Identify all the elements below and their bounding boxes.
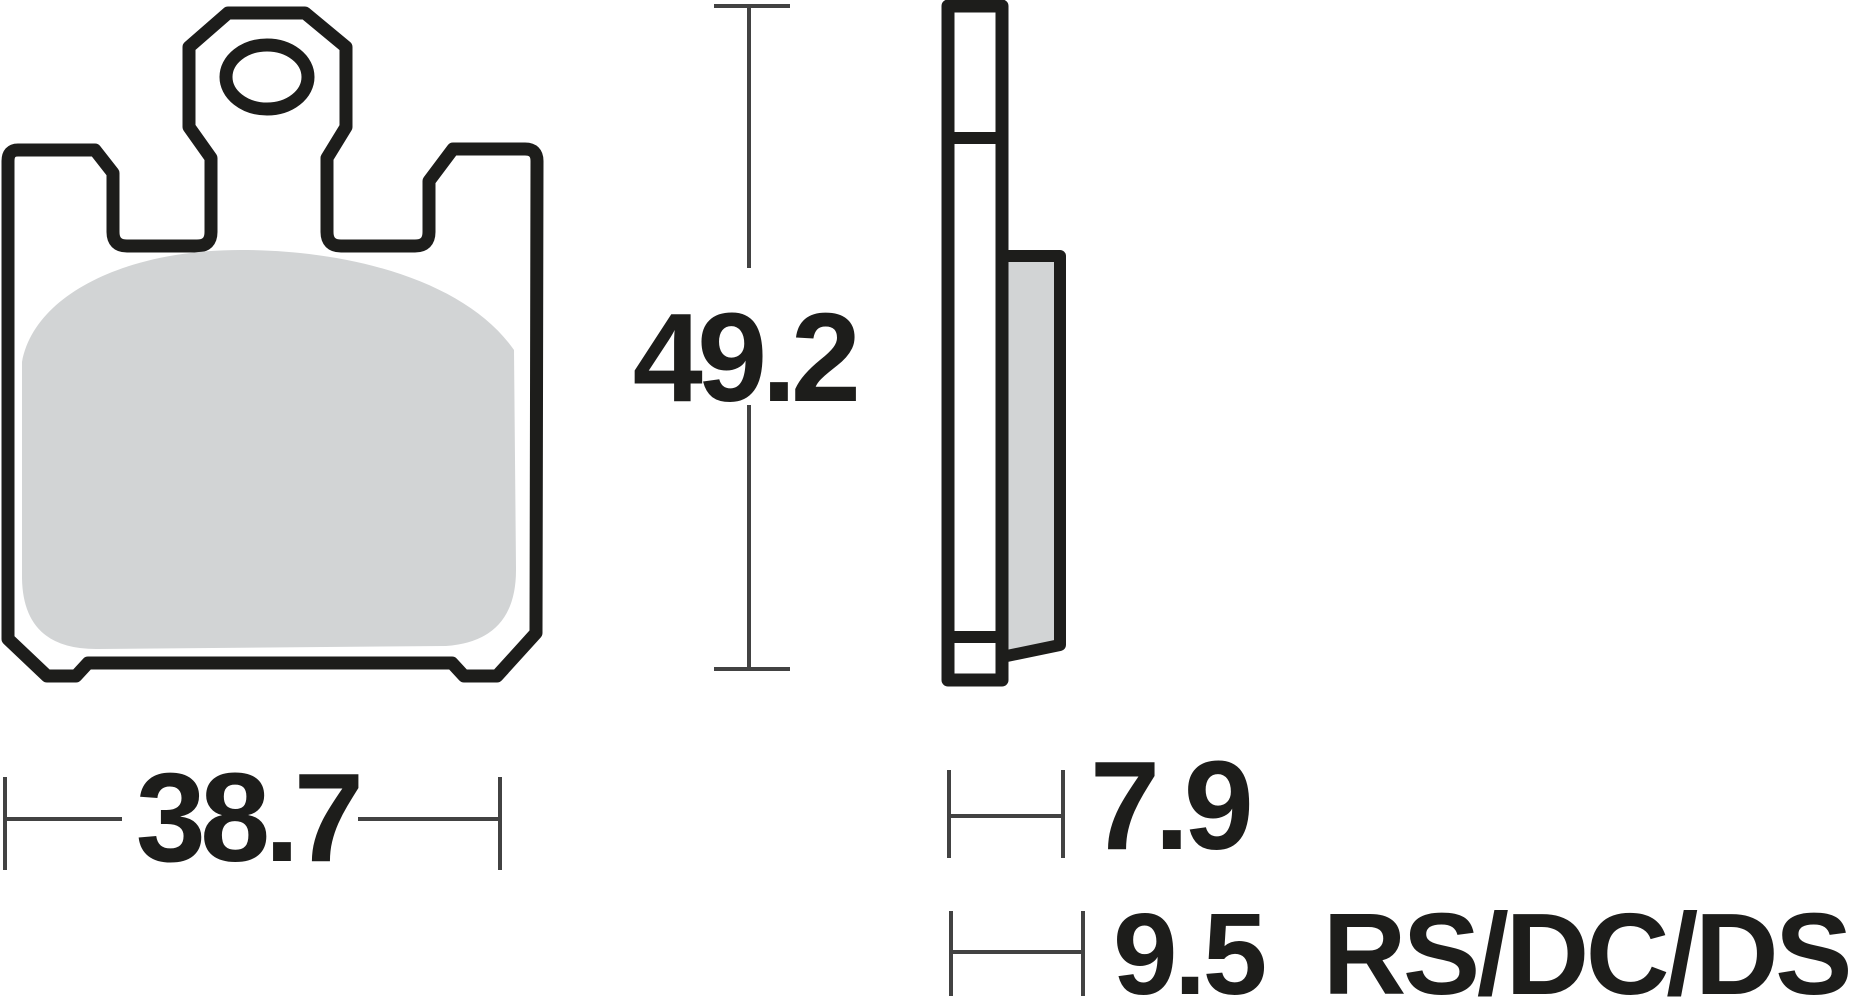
technical-drawing-page: 49.2 38.7 7.9 9.5 RS/DC/DS — [0, 0, 1859, 1000]
dimension-thickness-standard: 7.9 — [949, 735, 1250, 876]
thickness-dimension-label: 7.9 — [1090, 735, 1250, 876]
side-view — [948, 6, 1060, 680]
width-dimension-label: 38.7 — [136, 747, 359, 888]
height-dimension-label: 49.2 — [633, 287, 857, 428]
thickness-alt-value: 9.5 — [1113, 889, 1265, 1000]
thickness-alt-dimension-label: 9.5 RS/DC/DS — [1113, 889, 1849, 1000]
mounting-hole — [226, 45, 308, 109]
brake-pad-drawing: 49.2 38.7 7.9 9.5 RS/DC/DS — [0, 0, 1859, 1000]
dimension-width: 38.7 — [5, 747, 500, 888]
backing-plate-side — [948, 6, 1002, 680]
friction-material-side — [1002, 256, 1060, 657]
friction-material-front — [22, 250, 516, 649]
thickness-alt-suffix: RS/DC/DS — [1323, 889, 1849, 1000]
dimension-height: 49.2 — [633, 6, 857, 669]
dimension-thickness-alt: 9.5 RS/DC/DS — [951, 889, 1849, 1000]
front-view — [8, 13, 537, 676]
